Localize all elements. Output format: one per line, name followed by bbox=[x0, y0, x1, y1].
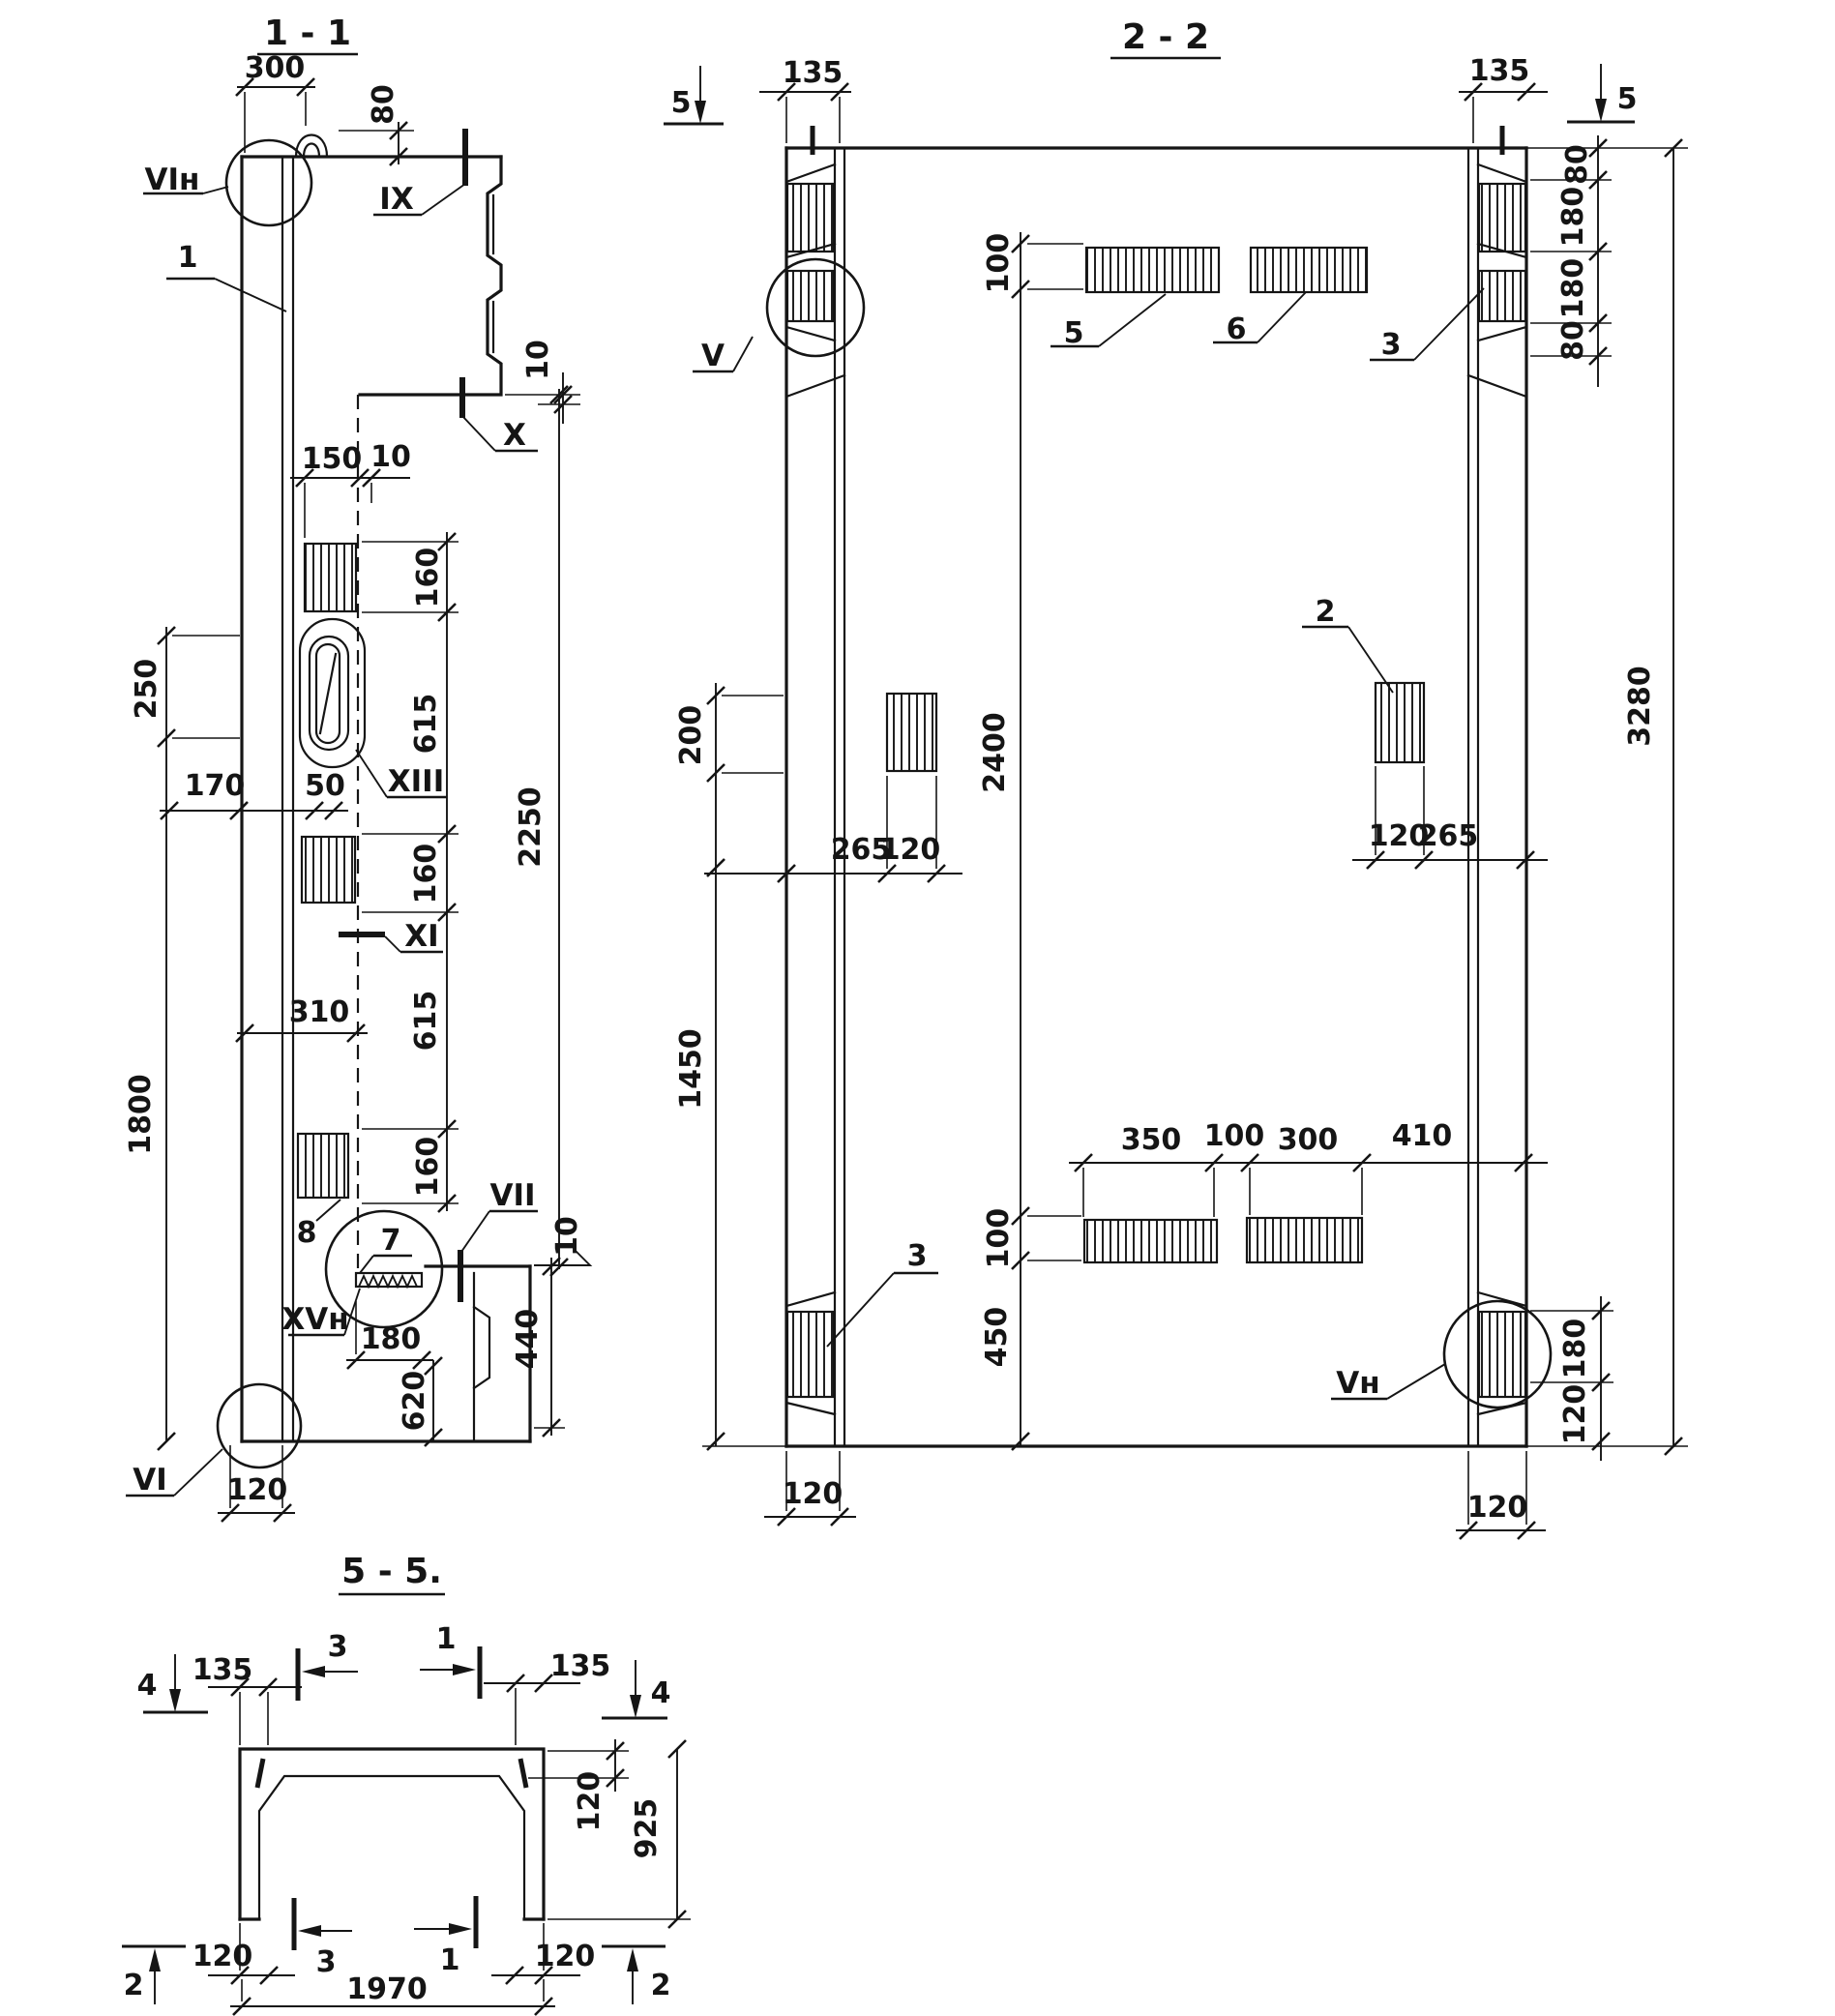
dim-80: 80 bbox=[367, 84, 400, 125]
item-2: 2 bbox=[1316, 595, 1336, 629]
cut-mark-4-right: 4 bbox=[651, 1676, 671, 1710]
dim-135-left: 135 bbox=[192, 1653, 253, 1687]
dim-135-left: 135 bbox=[783, 56, 844, 90]
embedded-plate-6 bbox=[1251, 248, 1367, 292]
dim-80-a: 80 bbox=[1560, 144, 1594, 185]
item-6: 6 bbox=[1227, 312, 1247, 346]
cut-mark-2-left: 2 bbox=[124, 1969, 144, 2002]
dim-615-b: 615 bbox=[409, 991, 443, 1052]
item-3-bottom: 3 bbox=[907, 1239, 928, 1273]
drawing-canvas: 1 - 1 300 80 VIн IX 1 10 X 150 10 160 25… bbox=[0, 0, 1835, 2016]
dim-250: 250 bbox=[130, 659, 163, 720]
bottom-keyway bbox=[474, 1307, 489, 1388]
item-7: 7 bbox=[381, 1224, 401, 1258]
cut-mark-1-bottom: 1 bbox=[440, 1943, 460, 1977]
dim-170: 170 bbox=[185, 769, 246, 803]
dim-135-right: 135 bbox=[550, 1649, 611, 1683]
embedded-plate-5 bbox=[1086, 248, 1219, 292]
dim-100-bottom: 100 bbox=[982, 1208, 1016, 1269]
dim-120-bottom-left: 120 bbox=[783, 1477, 844, 1511]
mark-XI: XI bbox=[404, 919, 438, 954]
embedded-plate bbox=[305, 544, 356, 611]
dim-1800: 1800 bbox=[124, 1074, 158, 1155]
section-5-5: 5 - 5. 4 135 3 1 135 4 120 925 120 3 1 1… bbox=[122, 1552, 691, 2015]
dim-120: 120 bbox=[227, 1473, 288, 1507]
cut-mark-5-left: 5 bbox=[671, 86, 692, 120]
dim-50: 50 bbox=[305, 769, 345, 803]
section-2-2: 2 - 2 5 135 135 5 80 180 180 80 100 5 6 … bbox=[664, 17, 1688, 1539]
mark-XIII: XIII bbox=[388, 764, 445, 799]
s55-outline bbox=[240, 1749, 544, 1919]
embedded-plate bbox=[887, 694, 936, 771]
embedded-plate-2 bbox=[1376, 683, 1424, 762]
mark-XVn: XVн bbox=[281, 1302, 348, 1337]
dim-120-slab: 120 bbox=[573, 1771, 607, 1832]
dim-160-b: 160 bbox=[409, 844, 443, 904]
mark-V: V bbox=[701, 339, 725, 373]
detail-circle-VIn bbox=[226, 140, 311, 225]
section-1-1: 1 - 1 300 80 VIн IX 1 10 X 150 10 160 25… bbox=[124, 14, 590, 1522]
cut-mark-3-bottom: 3 bbox=[316, 1945, 337, 1979]
item-5: 5 bbox=[1064, 316, 1084, 350]
mark-VIn: VIн bbox=[145, 163, 200, 197]
embedded-plate bbox=[298, 1134, 348, 1198]
embedded-plate bbox=[302, 837, 355, 903]
cut-mark-5-right: 5 bbox=[1617, 82, 1638, 116]
cut-mark-3-top: 3 bbox=[328, 1630, 348, 1664]
dim-265-right: 265 bbox=[1418, 819, 1479, 853]
dim-120-bottom-right: 120 bbox=[1467, 1491, 1528, 1525]
cut-mark-2-right: 2 bbox=[651, 1969, 671, 2002]
dim-440: 440 bbox=[511, 1309, 545, 1370]
dim-1970: 1970 bbox=[346, 1972, 428, 2006]
cut-mark-4-left: 4 bbox=[137, 1669, 158, 1703]
corner-mark bbox=[520, 1759, 526, 1788]
item-1: 1 bbox=[178, 241, 198, 275]
mark-VI: VI bbox=[133, 1463, 167, 1497]
dim-160-a: 160 bbox=[411, 548, 445, 608]
dim-120-bottom-right: 120 bbox=[535, 1940, 596, 1973]
dim-300: 300 bbox=[1278, 1123, 1339, 1157]
dim-310: 310 bbox=[289, 995, 350, 1029]
dim-200: 200 bbox=[674, 705, 708, 766]
item-3-top: 3 bbox=[1381, 328, 1402, 362]
dim-180-a: 180 bbox=[1556, 187, 1590, 248]
dim-1450: 1450 bbox=[674, 1028, 708, 1110]
embedded-plate bbox=[1247, 1218, 1362, 1262]
dim-180-c: 180 bbox=[1558, 1319, 1592, 1379]
cut-mark-1-top: 1 bbox=[436, 1622, 457, 1656]
s11-title: 1 - 1 bbox=[264, 14, 351, 53]
dim-10-b: 10 bbox=[370, 440, 411, 474]
dim-120-bottom-left: 120 bbox=[192, 1940, 253, 1973]
s55-title: 5 - 5. bbox=[341, 1552, 442, 1591]
dim-350: 350 bbox=[1121, 1123, 1182, 1157]
dim-925: 925 bbox=[630, 1798, 664, 1859]
dim-180-b: 180 bbox=[1556, 258, 1590, 319]
s22-embedded-plates bbox=[887, 248, 1424, 1262]
dim-120-c: 120 bbox=[1558, 1384, 1592, 1445]
dim-410: 410 bbox=[1392, 1119, 1453, 1153]
dim-100-mid: 100 bbox=[1204, 1119, 1265, 1153]
mark-VII: VII bbox=[489, 1178, 535, 1213]
dim-180: 180 bbox=[361, 1322, 422, 1356]
mark-X: X bbox=[503, 418, 526, 453]
mark-Vn: Vн bbox=[1336, 1366, 1379, 1401]
dim-620: 620 bbox=[398, 1371, 431, 1432]
dim-615-a: 615 bbox=[409, 694, 443, 755]
dim-100-top: 100 bbox=[982, 233, 1016, 294]
dim-135-right: 135 bbox=[1469, 54, 1530, 88]
s22-title: 2 - 2 bbox=[1122, 17, 1209, 57]
embedded-plate bbox=[1084, 1220, 1217, 1262]
dim-160-c: 160 bbox=[411, 1137, 445, 1198]
dim-2250: 2250 bbox=[514, 786, 548, 868]
drawing-sheet: 1 - 1 300 80 VIн IX 1 10 X 150 10 160 25… bbox=[0, 0, 1835, 2016]
dim-2400: 2400 bbox=[978, 712, 1012, 793]
dim-80-b: 80 bbox=[1556, 320, 1590, 361]
dim-120-left: 120 bbox=[880, 833, 941, 867]
dim-450: 450 bbox=[980, 1307, 1014, 1368]
dim-300: 300 bbox=[245, 51, 306, 85]
item-8: 8 bbox=[297, 1216, 317, 1250]
s11-embedded-plates bbox=[298, 544, 422, 1287]
corner-mark bbox=[257, 1759, 263, 1788]
mark-IX: IX bbox=[379, 182, 414, 217]
toothed-plate-7 bbox=[356, 1273, 422, 1287]
dim-10-top: 10 bbox=[521, 340, 555, 380]
dim-3280: 3280 bbox=[1623, 666, 1657, 747]
dim-150: 150 bbox=[302, 442, 363, 476]
dim-10-c: 10 bbox=[550, 1216, 584, 1257]
